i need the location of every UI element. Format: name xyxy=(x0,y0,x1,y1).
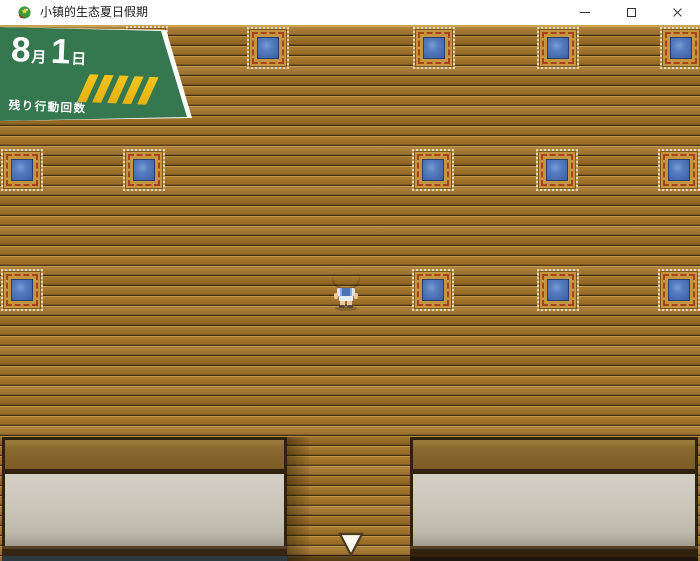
passage-shadow xyxy=(287,437,309,561)
carpet-tile xyxy=(413,27,455,69)
carpet-tile xyxy=(123,149,165,191)
hud-badge-background: 8月 1日 残り行動回数 xyxy=(0,25,192,123)
counter-top-surface xyxy=(410,437,698,474)
exit-indicator xyxy=(338,532,364,557)
window-title: 小镇的生态夏日假期 xyxy=(40,0,148,25)
player-shirt xyxy=(337,288,355,296)
carpet-tile xyxy=(412,149,454,191)
game-viewport[interactable]: 8月 1日 残り行動回数 xyxy=(0,25,700,561)
hud-day-unit: 日 xyxy=(71,51,87,69)
player-hand xyxy=(354,293,358,299)
window-controls xyxy=(562,0,700,25)
carpet-tile xyxy=(537,269,579,311)
player-hand xyxy=(334,293,338,299)
carpet-tile xyxy=(1,269,43,311)
close-icon xyxy=(672,7,683,18)
app-window: 小镇的生态夏日假期 xyxy=(0,0,700,561)
app-icon xyxy=(17,5,32,20)
title-bar[interactable]: 小镇的生态夏日假期 xyxy=(0,0,700,25)
close-button[interactable] xyxy=(654,0,700,25)
counter-right xyxy=(410,437,698,561)
minimize-icon xyxy=(580,12,590,13)
carpet-tile xyxy=(658,269,700,311)
maximize-button[interactable] xyxy=(608,0,654,25)
player-character xyxy=(331,266,361,311)
counter-base xyxy=(410,546,698,561)
hud-date-badge: 8月 1日 残り行動回数 xyxy=(0,25,192,123)
counter-left xyxy=(2,437,287,561)
counter-top-surface xyxy=(2,437,287,474)
carpet-tile xyxy=(537,27,579,69)
counter-front xyxy=(410,474,698,546)
carpet-tile xyxy=(658,149,700,191)
hud-actions-label: 残り行動回数 xyxy=(8,97,87,116)
minimize-button[interactable] xyxy=(562,0,608,25)
hud-date-text: 8月 1日 xyxy=(10,30,87,73)
carpet-tile xyxy=(247,27,289,69)
hud-month-unit: 月 xyxy=(31,49,47,67)
player-shoe xyxy=(347,305,353,308)
counter-base xyxy=(2,546,287,561)
hud-month-value: 8 xyxy=(10,30,32,70)
hud-day-value: 1 xyxy=(50,32,72,72)
carpet-tile xyxy=(412,269,454,311)
carpet-tile xyxy=(536,149,578,191)
maximize-icon xyxy=(627,8,636,17)
player-shoe xyxy=(339,305,345,308)
action-stripes xyxy=(83,74,153,105)
player-hair xyxy=(332,266,360,290)
carpet-tile xyxy=(1,149,43,191)
carpet-tile xyxy=(660,27,700,69)
counter-front xyxy=(2,474,287,546)
